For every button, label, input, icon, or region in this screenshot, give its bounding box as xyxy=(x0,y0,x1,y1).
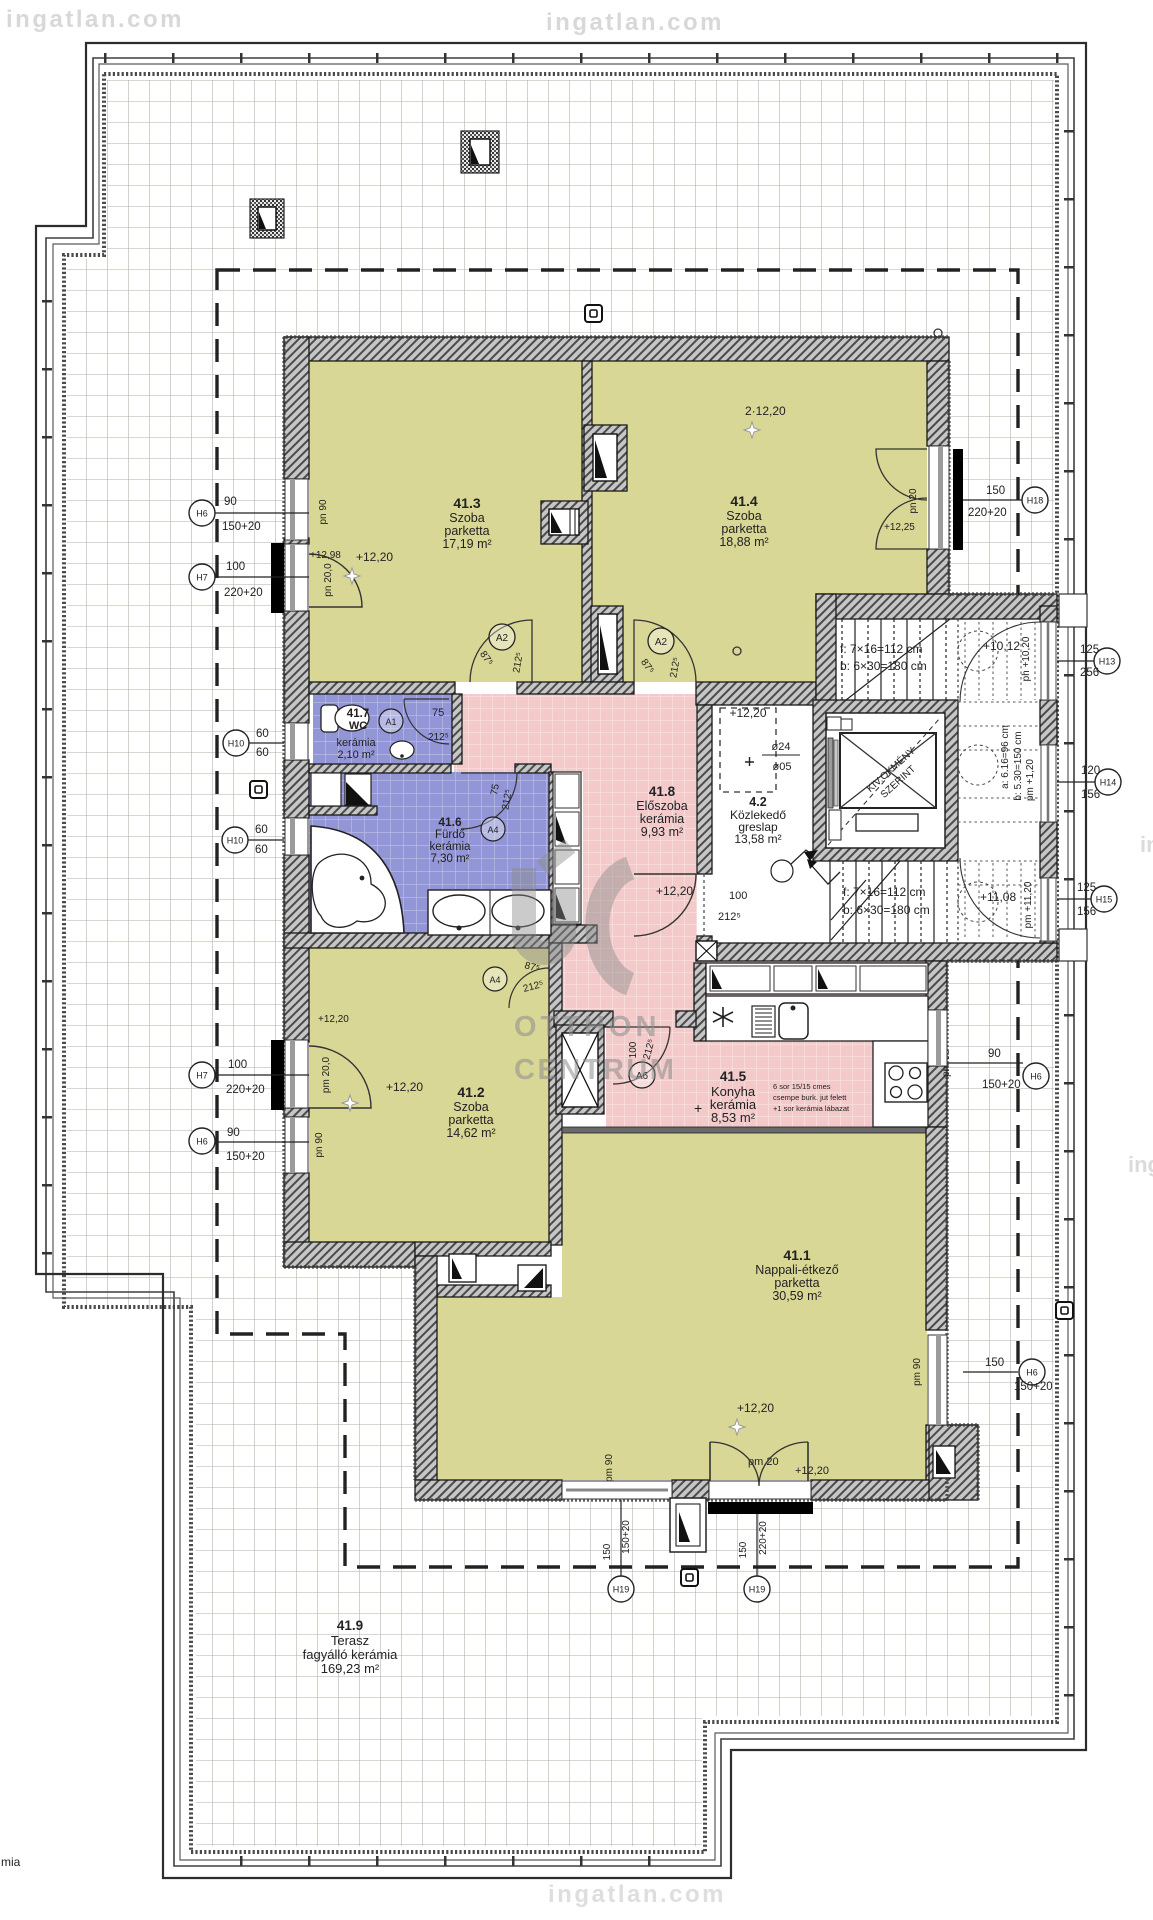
svg-text:+10,12: +10,12 xyxy=(983,639,1020,653)
svg-text:+12,20: +12,20 xyxy=(737,1401,774,1415)
svg-text:OTTHON: OTTHON xyxy=(514,1011,660,1043)
svg-text:kerámia: kerámia xyxy=(640,812,685,826)
svg-text:169,23 m²: 169,23 m² xyxy=(321,1661,380,1676)
svg-text:WC: WC xyxy=(349,720,367,732)
svg-text:H19: H19 xyxy=(749,1585,766,1595)
svg-text:150+20: 150+20 xyxy=(621,1520,632,1554)
svg-text:220+20: 220+20 xyxy=(758,1521,769,1555)
svg-text:6 sor 15/15 cmes: 6 sor 15/15 cmes xyxy=(773,1082,831,1091)
svg-text:Szoba: Szoba xyxy=(726,509,761,523)
svg-text:41.9: 41.9 xyxy=(337,1618,363,1633)
svg-text:H15: H15 xyxy=(1096,895,1113,905)
svg-text:pm 90: pm 90 xyxy=(912,1358,923,1386)
svg-text:150+20: 150+20 xyxy=(226,1151,265,1163)
svg-text:H19: H19 xyxy=(613,1585,630,1595)
svg-text:150: 150 xyxy=(738,1541,749,1558)
svg-text:parketta: parketta xyxy=(444,524,489,538)
svg-text:156: 156 xyxy=(1077,906,1096,918)
svg-text:150+20: 150+20 xyxy=(982,1079,1021,1091)
svg-text:41.3: 41.3 xyxy=(453,495,480,511)
svg-text:220+20: 220+20 xyxy=(224,587,263,599)
svg-text:ø05: ø05 xyxy=(773,761,792,773)
svg-text:H10: H10 xyxy=(227,836,244,846)
svg-text:kerámia: kerámia xyxy=(430,841,472,853)
svg-text:kerámia: kerámia xyxy=(336,737,376,749)
svg-text:Előszoba: Előszoba xyxy=(636,799,687,813)
svg-text:90: 90 xyxy=(227,1127,240,1139)
svg-text:b: 6×30=180 cm: b: 6×30=180 cm xyxy=(840,659,927,673)
svg-text:18,88 m²: 18,88 m² xyxy=(719,535,768,549)
svg-text:H14: H14 xyxy=(1100,778,1117,788)
svg-text:100: 100 xyxy=(226,561,245,573)
svg-text:+12,20: +12,20 xyxy=(386,1080,423,1094)
svg-text:212⁵: 212⁵ xyxy=(718,911,741,923)
svg-text:ingatlan.com: ingatlan.com xyxy=(546,9,724,36)
svg-text:ingatlan.com: ingatlan.com xyxy=(1140,832,1153,857)
svg-text:125: 125 xyxy=(1080,644,1099,656)
svg-text:41.6: 41.6 xyxy=(438,815,462,829)
svg-text:2,10 m²: 2,10 m² xyxy=(337,749,375,761)
svg-text:30,59 m²: 30,59 m² xyxy=(772,1289,821,1303)
svg-text:+12,98: +12,98 xyxy=(310,550,341,561)
svg-text:Nappali-étkező: Nappali-étkező xyxy=(755,1263,838,1277)
svg-text:pm 20,0: pm 20,0 xyxy=(321,1056,332,1093)
svg-text:parketta: parketta xyxy=(721,522,766,536)
svg-text:212⁵: 212⁵ xyxy=(428,732,449,743)
svg-text:220+20: 220+20 xyxy=(226,1084,265,1096)
svg-text:f: 7×16=112 cm: f: 7×16=112 cm xyxy=(840,642,923,656)
svg-text:f: 7×16=112 cm: f: 7×16=112 cm xyxy=(843,885,926,899)
svg-text:60: 60 xyxy=(256,728,269,740)
svg-text:+12,20: +12,20 xyxy=(656,884,693,898)
svg-text:pn 20: pn 20 xyxy=(908,488,919,513)
svg-text:ø24: ø24 xyxy=(772,741,791,753)
svg-text:150: 150 xyxy=(985,1357,1004,1369)
svg-text:pm +11,20: pm +11,20 xyxy=(1023,881,1034,928)
svg-text:+12,20: +12,20 xyxy=(729,706,766,720)
svg-text:Szoba: Szoba xyxy=(449,511,484,525)
svg-text:150+20: 150+20 xyxy=(222,521,261,533)
svg-text:41.2: 41.2 xyxy=(457,1084,484,1100)
svg-text:csempe burk. jut felett: csempe burk. jut felett xyxy=(773,1093,847,1102)
svg-text:+: + xyxy=(694,1100,702,1116)
svg-text:150: 150 xyxy=(602,1543,613,1560)
svg-text:60: 60 xyxy=(255,824,268,836)
svg-text:41.5: 41.5 xyxy=(720,1069,747,1084)
svg-text:ingatlan.com: ingatlan.com xyxy=(1128,1152,1153,1177)
svg-text:+11,08: +11,08 xyxy=(980,890,1016,904)
svg-text:125: 125 xyxy=(1077,882,1096,894)
svg-text:+12,20: +12,20 xyxy=(356,550,393,564)
svg-text:H6: H6 xyxy=(196,1137,208,1147)
svg-text:90: 90 xyxy=(224,496,237,508)
svg-text:+1 sor kerámia lábazat: +1 sor kerámia lábazat xyxy=(773,1104,850,1113)
svg-text:75: 75 xyxy=(432,707,444,719)
svg-text:parketta: parketta xyxy=(774,1276,819,1290)
svg-text:H6: H6 xyxy=(196,509,208,519)
svg-text:ingatlan.com: ingatlan.com xyxy=(6,6,184,33)
svg-text:17,19 m²: 17,19 m² xyxy=(442,537,491,551)
svg-text:256: 256 xyxy=(1080,667,1099,679)
svg-text:H10: H10 xyxy=(228,739,245,749)
svg-text:A4: A4 xyxy=(489,975,500,985)
svg-text:parketta: parketta xyxy=(448,1113,493,1127)
svg-text:+12,20: +12,20 xyxy=(795,1465,829,1477)
svg-text:13,58 m²: 13,58 m² xyxy=(734,832,781,846)
svg-text:60: 60 xyxy=(255,844,268,856)
svg-text:b: 6×30=180 cm: b: 6×30=180 cm xyxy=(843,903,930,917)
svg-text:H6: H6 xyxy=(1026,1368,1038,1378)
svg-text:ph +10,20: ph +10,20 xyxy=(1021,636,1032,681)
svg-text:41.1: 41.1 xyxy=(783,1247,810,1263)
svg-text:156: 156 xyxy=(1081,789,1100,801)
svg-text:Szoba: Szoba xyxy=(453,1100,488,1114)
svg-text:150+20: 150+20 xyxy=(1014,1381,1053,1393)
svg-text:mia: mia xyxy=(1,1855,21,1869)
svg-text:150: 150 xyxy=(986,485,1005,497)
svg-text:CENTRUM: CENTRUM xyxy=(514,1054,677,1086)
svg-text:2·12,20: 2·12,20 xyxy=(745,404,786,418)
svg-text:4.2: 4.2 xyxy=(749,795,766,809)
svg-text:9,93 m²: 9,93 m² xyxy=(641,825,683,839)
svg-text:H6: H6 xyxy=(1030,1072,1042,1082)
svg-text:H13: H13 xyxy=(1099,657,1116,667)
svg-text:pn 90: pn 90 xyxy=(318,499,329,524)
svg-text:8,53 m²: 8,53 m² xyxy=(711,1110,756,1125)
svg-text:H18: H18 xyxy=(1027,496,1044,506)
svg-text:A2: A2 xyxy=(496,633,509,644)
svg-text:41.4: 41.4 xyxy=(730,493,757,509)
svg-text:41.7: 41.7 xyxy=(347,708,369,720)
svg-text:60: 60 xyxy=(256,747,269,759)
svg-text:pm +1,20: pm +1,20 xyxy=(1025,759,1036,801)
svg-text:pn 20,0: pn 20,0 xyxy=(323,563,334,597)
svg-text:41.8: 41.8 xyxy=(649,784,676,799)
svg-text:b: 5.30=150 cm: b: 5.30=150 cm xyxy=(1013,731,1024,800)
svg-text:H7: H7 xyxy=(196,573,208,583)
svg-text:A4: A4 xyxy=(487,825,498,835)
svg-text:A2: A2 xyxy=(655,637,668,648)
svg-text:H7: H7 xyxy=(196,1071,208,1081)
svg-text:90: 90 xyxy=(988,1048,1001,1060)
svg-text:100: 100 xyxy=(228,1059,247,1071)
svg-text:pm 20: pm 20 xyxy=(748,1456,779,1468)
svg-text:100: 100 xyxy=(729,890,747,902)
svg-text:ingatlan.com: ingatlan.com xyxy=(548,1881,726,1908)
svg-text:pm 90: pm 90 xyxy=(604,1454,615,1482)
svg-text:A1: A1 xyxy=(385,717,396,727)
svg-text:Terasz: Terasz xyxy=(331,1633,369,1648)
svg-text:a: 6.16=96 cm: a: 6.16=96 cm xyxy=(1000,725,1011,789)
svg-text:220+20: 220+20 xyxy=(968,507,1007,519)
svg-text:pn 90: pn 90 xyxy=(314,1132,325,1157)
svg-text:+12,25: +12,25 xyxy=(884,522,915,533)
svg-text:7,30 m²: 7,30 m² xyxy=(431,853,470,865)
svg-text:120: 120 xyxy=(1081,765,1100,777)
svg-text:+12,20: +12,20 xyxy=(318,1014,349,1025)
svg-text:14,62 m²: 14,62 m² xyxy=(446,1126,495,1140)
svg-text:fagyálló kerámia: fagyálló kerámia xyxy=(303,1647,398,1662)
svg-text:Fürdő: Fürdő xyxy=(435,829,465,841)
